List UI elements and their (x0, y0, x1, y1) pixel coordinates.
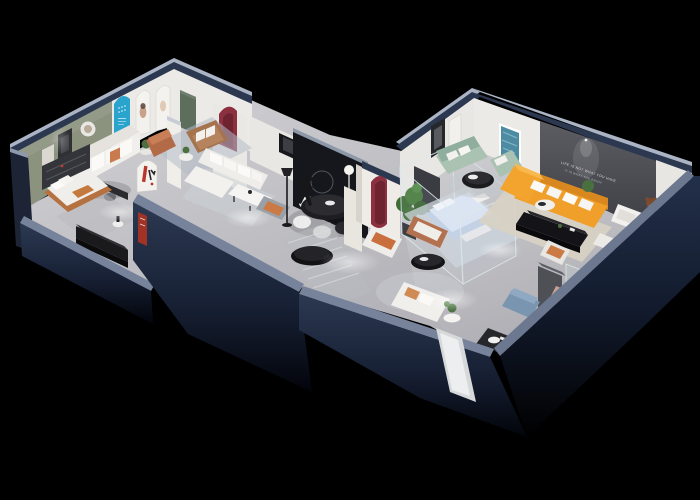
white-tray-table (488, 337, 500, 344)
red-banner (138, 212, 147, 246)
arch-sign-red-logo (137, 160, 157, 192)
downlight (585, 139, 588, 142)
render-canvas: LIFE IS NOT WHAT YOU HAVE IT IS WHAT YOU… (0, 0, 700, 500)
plant-side-table (444, 314, 461, 323)
side-table (179, 153, 193, 161)
showroom-floorplan-render: LIFE IS NOT WHAT YOU HAVE IT IS WHAT YOU… (0, 0, 700, 500)
sofa-plant (582, 180, 594, 192)
dining-chair (293, 216, 311, 229)
